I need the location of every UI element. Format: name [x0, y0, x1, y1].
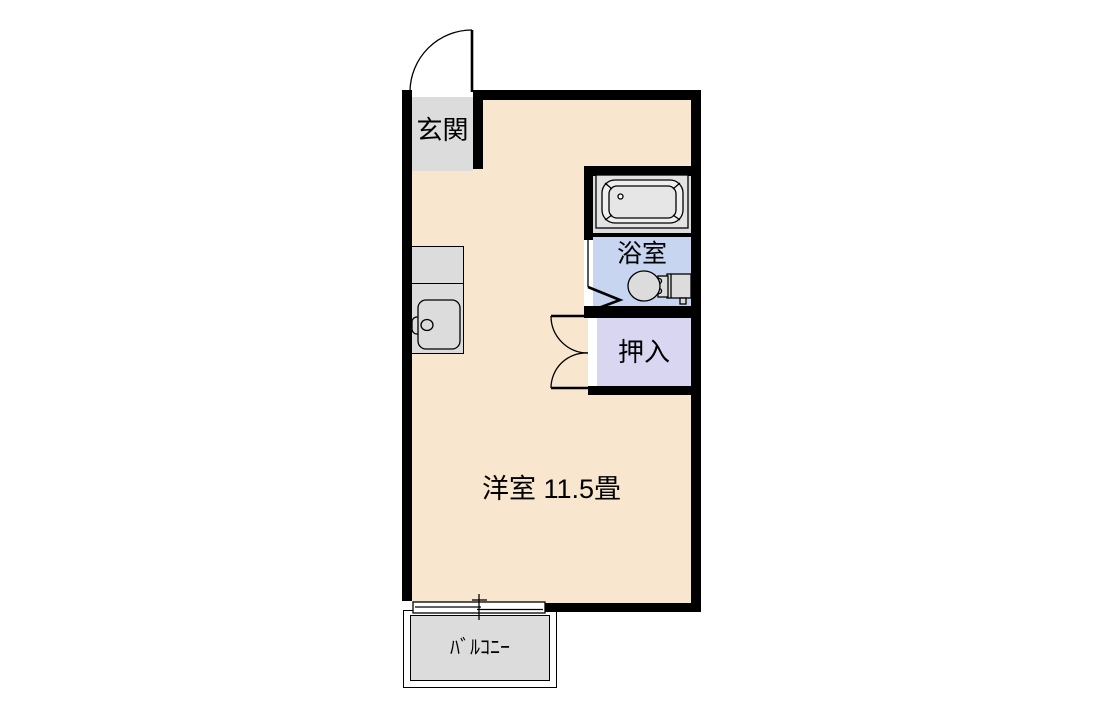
main-room-label: 洋室 11.5畳 [412, 474, 691, 505]
floorplan-canvas: 玄関 浴室 押入 洋室 11.5畳 ﾊﾞﾙｺﾆｰ [0, 0, 1104, 717]
bathroom-label: 浴室 [593, 240, 691, 269]
wall-closet-top [584, 306, 701, 318]
kitchen-counter [411, 246, 464, 354]
wall-left [402, 90, 412, 601]
bathroom-door-opening [584, 240, 593, 306]
wall-closet-bottom [588, 386, 701, 395]
genkan-label: 玄関 [412, 116, 473, 146]
wall-bottom [545, 603, 701, 612]
closet-label: 押入 [597, 338, 691, 368]
kitchen-counter-divider [412, 283, 463, 284]
wall-genkan-right [473, 90, 483, 169]
wall-bathroom-left [584, 166, 593, 240]
closet-door-opening [588, 318, 597, 386]
wall-top [473, 90, 701, 100]
bathtub-area-floor [593, 176, 691, 233]
balcony-label: ﾊﾞﾙｺﾆｰ [410, 637, 550, 660]
wall-right [691, 90, 701, 612]
entry-door-icon [410, 30, 472, 92]
wall-bathroom-top [584, 166, 691, 176]
